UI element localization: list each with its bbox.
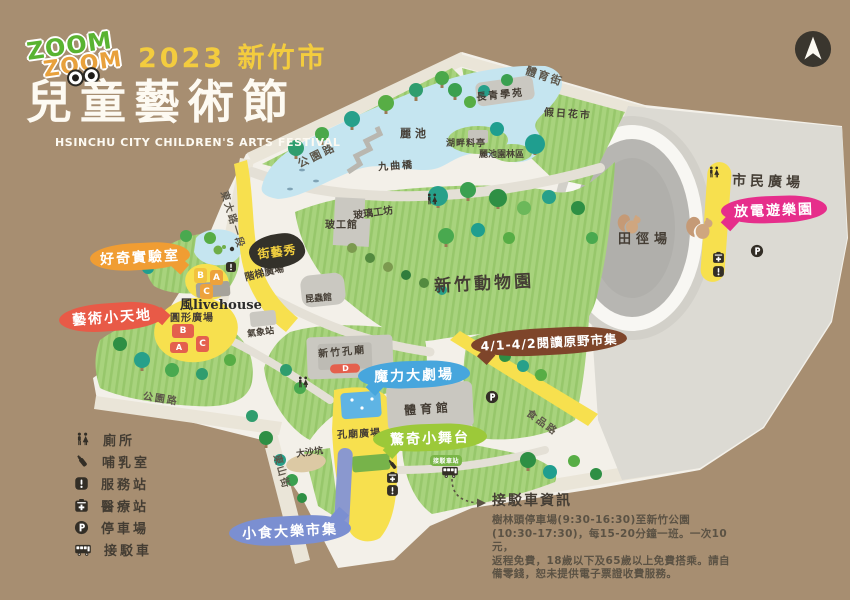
label-glass-museum: 玻工館 (325, 216, 358, 231)
shuttle-info-panel: 接駁車資訊 樹林頭停車場(9:30-16:30)至新竹公園 (10:30-17:… (492, 490, 744, 582)
red-block-c: C (196, 336, 209, 352)
shuttle-info-line: (10:30-17:30)，每15-20分鐘一班。一次10元， (492, 528, 744, 555)
label-li-pond-garden: 麗池園林區 (479, 147, 524, 160)
orange-block-a: A (210, 270, 223, 285)
legend-item-nursing: 哺乳室 (74, 450, 152, 472)
label-citizens-plaza: 市民廣場 (732, 170, 805, 193)
shuttle-info-line: 返程免費，18歲以下及65歲以上免費搭乘。請自 (492, 555, 744, 569)
parking-icon (485, 390, 499, 404)
bus-icon (440, 464, 460, 479)
legend-item-medical: 醫療站 (74, 494, 152, 516)
red-block-a: A (170, 342, 188, 353)
service-icon (712, 265, 725, 278)
event-title: 兒童藝術節 (26, 66, 296, 132)
wc-icon (74, 432, 91, 447)
medical-icon (74, 498, 89, 513)
bottle-icon (386, 458, 399, 471)
legend-item-parking: 停車場 (74, 516, 152, 538)
temple-marker-d: D (339, 363, 352, 373)
event-subtitle: HSINCHU CITY CHILDREN'S ARTS FESTIVAL (55, 136, 341, 149)
service-icon (386, 484, 399, 497)
service-icon (74, 476, 89, 491)
wc-icon (425, 193, 439, 206)
red-block-b: B (172, 324, 194, 338)
legend-item-wc: 廁所 (74, 428, 152, 450)
service-icon (225, 261, 237, 273)
bus-icon (74, 542, 92, 557)
street-art-dot (230, 247, 234, 251)
parking-icon (750, 244, 764, 258)
label-gymnasium: 體育館 (403, 398, 452, 418)
orange-block-c: C (200, 284, 213, 299)
label-round-plaza: 圓形廣場 (170, 309, 214, 324)
legend-label: 接駁車 (104, 540, 152, 559)
wc-icon (296, 376, 310, 389)
label-li-pond: 麗池 (400, 125, 430, 141)
legend-label: 服務站 (101, 474, 149, 493)
wc-icon (707, 166, 721, 179)
bottle-icon (74, 453, 90, 469)
legend-item-shuttle: 接駁車 (74, 538, 152, 560)
legend-label: 廁所 (103, 430, 135, 449)
label-hsinchu-zoo: 新竹動物園 (433, 266, 534, 296)
legend-label: 哺乳室 (102, 452, 150, 471)
legend-item-service: 服務站 (74, 472, 152, 494)
medical-icon (386, 471, 399, 484)
label-athletics-field: 田徑場 (618, 228, 672, 247)
parking-icon (74, 520, 89, 535)
legend-label: 停車場 (101, 518, 149, 537)
shuttle-info-line: 備零錢，恕未提供電子票證收費服務。 (492, 568, 744, 582)
map-legend: 廁所 哺乳室 服務站 醫療站 停車場 接駁車 (74, 428, 152, 560)
shuttle-info-title: 接駁車資訊 (492, 490, 744, 510)
medical-icon (712, 251, 725, 264)
label-nine-turn-bridge: 九曲橋 (378, 156, 415, 173)
orange-block-b: B (194, 268, 207, 283)
legend-label: 醫療站 (101, 496, 149, 515)
shuttle-info-line: 樹林頭停車場(9:30-16:30)至新竹公園 (492, 514, 744, 528)
label-insect-museum: 昆蟲館 (304, 290, 332, 305)
festival-map-poster: ZOOM ZOOM 2023 新竹市 兒童藝術節 HSINCHU CITY CH… (0, 0, 850, 600)
shuttle-stop-tag: 接駁車站 (430, 455, 462, 466)
north-compass-icon (794, 30, 832, 68)
